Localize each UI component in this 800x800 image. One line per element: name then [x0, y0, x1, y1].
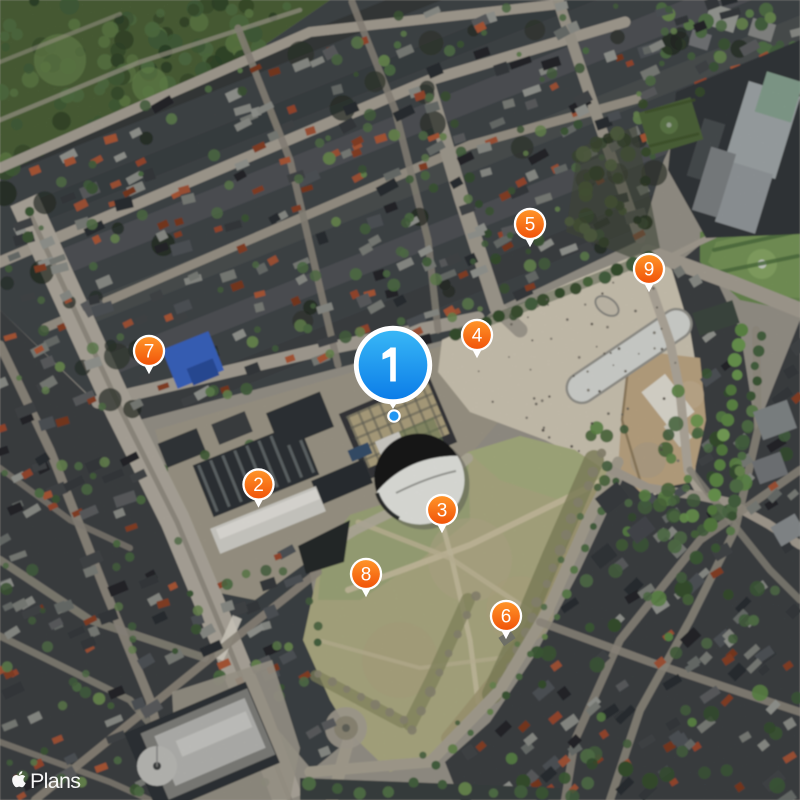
svg-text:9: 9	[644, 260, 655, 281]
svg-text:2: 2	[253, 475, 264, 496]
svg-text:6: 6	[501, 607, 512, 628]
svg-text:Plans: Plans	[30, 769, 80, 793]
svg-text:7: 7	[144, 342, 155, 363]
svg-text:5: 5	[525, 215, 536, 236]
svg-text:4: 4	[472, 326, 483, 347]
svg-text:8: 8	[361, 565, 372, 586]
svg-text:3: 3	[437, 501, 448, 522]
